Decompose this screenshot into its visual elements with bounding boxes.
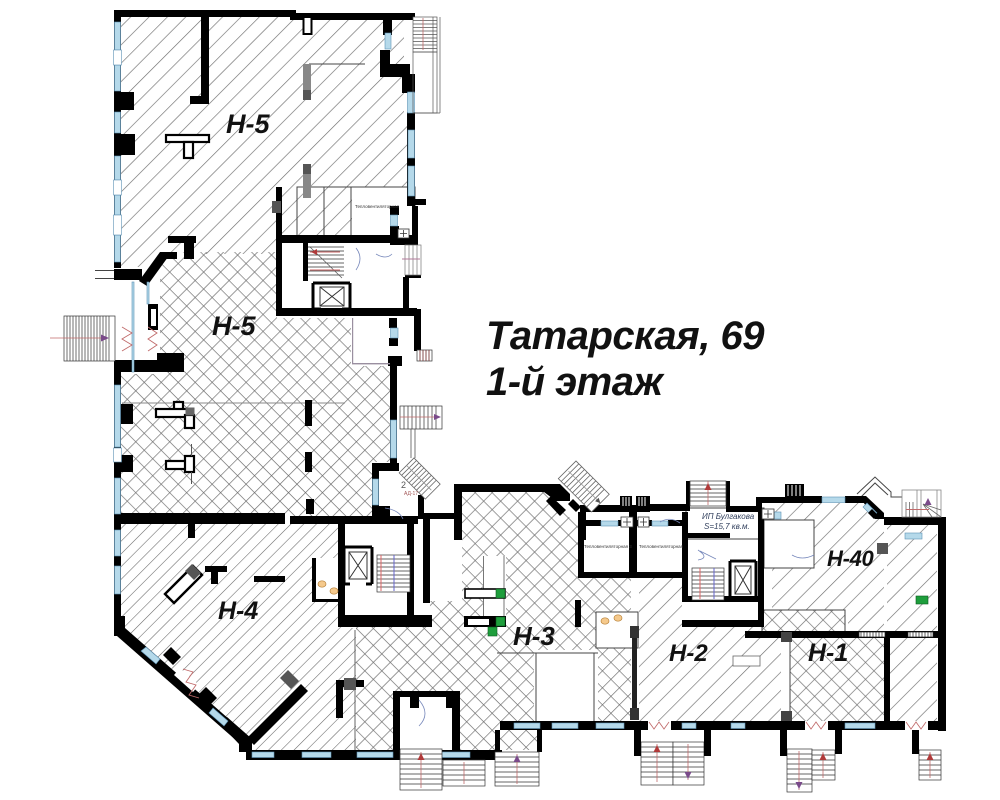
svg-text:Татарская, 69: Татарская, 69 [486, 314, 765, 358]
svg-text:2: 2 [401, 480, 406, 490]
svg-text:ИП Булгакова: ИП Булгакова [702, 512, 755, 521]
svg-text:Н-4: Н-4 [218, 597, 258, 625]
svg-text:Н-40: Н-40 [827, 546, 875, 571]
svg-text:Н-1: Н-1 [808, 639, 848, 667]
svg-text:Н-2: Н-2 [669, 640, 708, 667]
svg-text:Тепловентиляторная: Тепловентиляторная [355, 204, 400, 209]
svg-text:Тепловентиляторная 3: Тепловентиляторная 3 [584, 544, 632, 549]
svg-text:Н-3: Н-3 [513, 621, 555, 651]
svg-text:АД-17: АД-17 [404, 491, 418, 497]
svg-text:Н-5: Н-5 [212, 311, 256, 341]
svg-text:S=15,7 кв.м.: S=15,7 кв.м. [704, 522, 750, 531]
svg-text:1-й этаж: 1-й этаж [486, 360, 665, 404]
svg-text:Тепловентиляторная: Тепловентиляторная [639, 544, 684, 549]
svg-text:Н-5: Н-5 [226, 109, 270, 139]
